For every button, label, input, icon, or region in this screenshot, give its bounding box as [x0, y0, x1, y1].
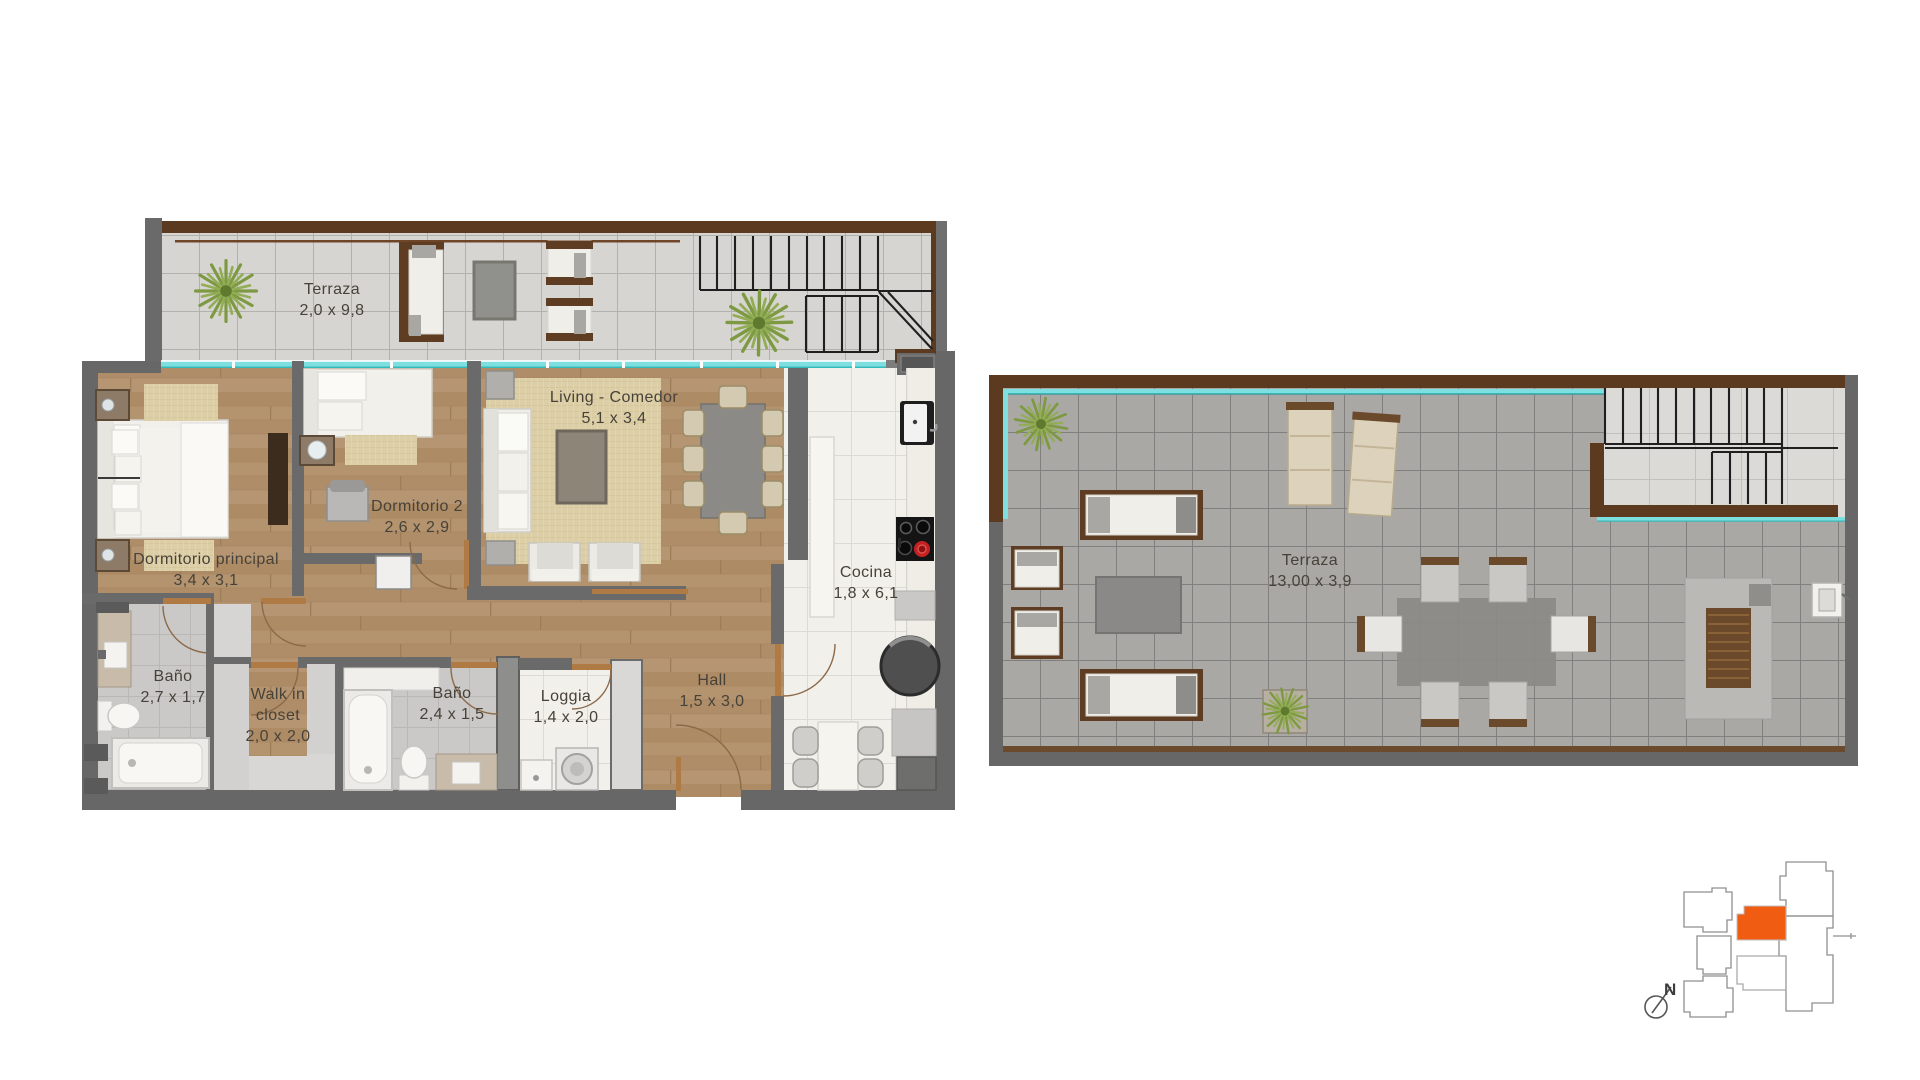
svg-text:closet: closet — [256, 707, 300, 724]
svg-text:2,0 x 9,8: 2,0 x 9,8 — [300, 302, 365, 319]
svg-text:2,6 x 2,9: 2,6 x 2,9 — [385, 519, 450, 536]
svg-text:13,00 x 3,9: 13,00 x 3,9 — [1268, 573, 1352, 590]
svg-text:2,7 x 1,7: 2,7 x 1,7 — [141, 689, 206, 706]
svg-text:Dormitorio 2: Dormitorio 2 — [371, 498, 463, 515]
svg-text:N: N — [1664, 980, 1676, 999]
svg-text:Terraza: Terraza — [304, 281, 360, 298]
svg-text:1,5 x 3,0: 1,5 x 3,0 — [680, 693, 745, 710]
svg-text:Cocina: Cocina — [840, 564, 892, 581]
svg-text:1,8 x 6,1: 1,8 x 6,1 — [834, 585, 899, 602]
svg-text:Terraza: Terraza — [1282, 552, 1338, 569]
svg-text:3,4 x 3,1: 3,4 x 3,1 — [174, 572, 239, 589]
svg-text:Walk in: Walk in — [251, 686, 306, 703]
svg-text:2,0 x 2,0: 2,0 x 2,0 — [246, 728, 311, 745]
svg-text:Baño: Baño — [154, 668, 193, 685]
svg-text:1,4 x 2,0: 1,4 x 2,0 — [534, 709, 599, 726]
svg-text:Hall: Hall — [697, 672, 726, 689]
svg-text:2,4 x 1,5: 2,4 x 1,5 — [420, 706, 485, 723]
svg-text:Dormitorio principal: Dormitorio principal — [133, 551, 279, 568]
svg-text:Loggia: Loggia — [541, 688, 591, 705]
svg-text:5,1 x 3,4: 5,1 x 3,4 — [582, 410, 647, 427]
svg-text:Baño: Baño — [433, 685, 472, 702]
svg-text:Living - Comedor: Living - Comedor — [550, 389, 678, 406]
